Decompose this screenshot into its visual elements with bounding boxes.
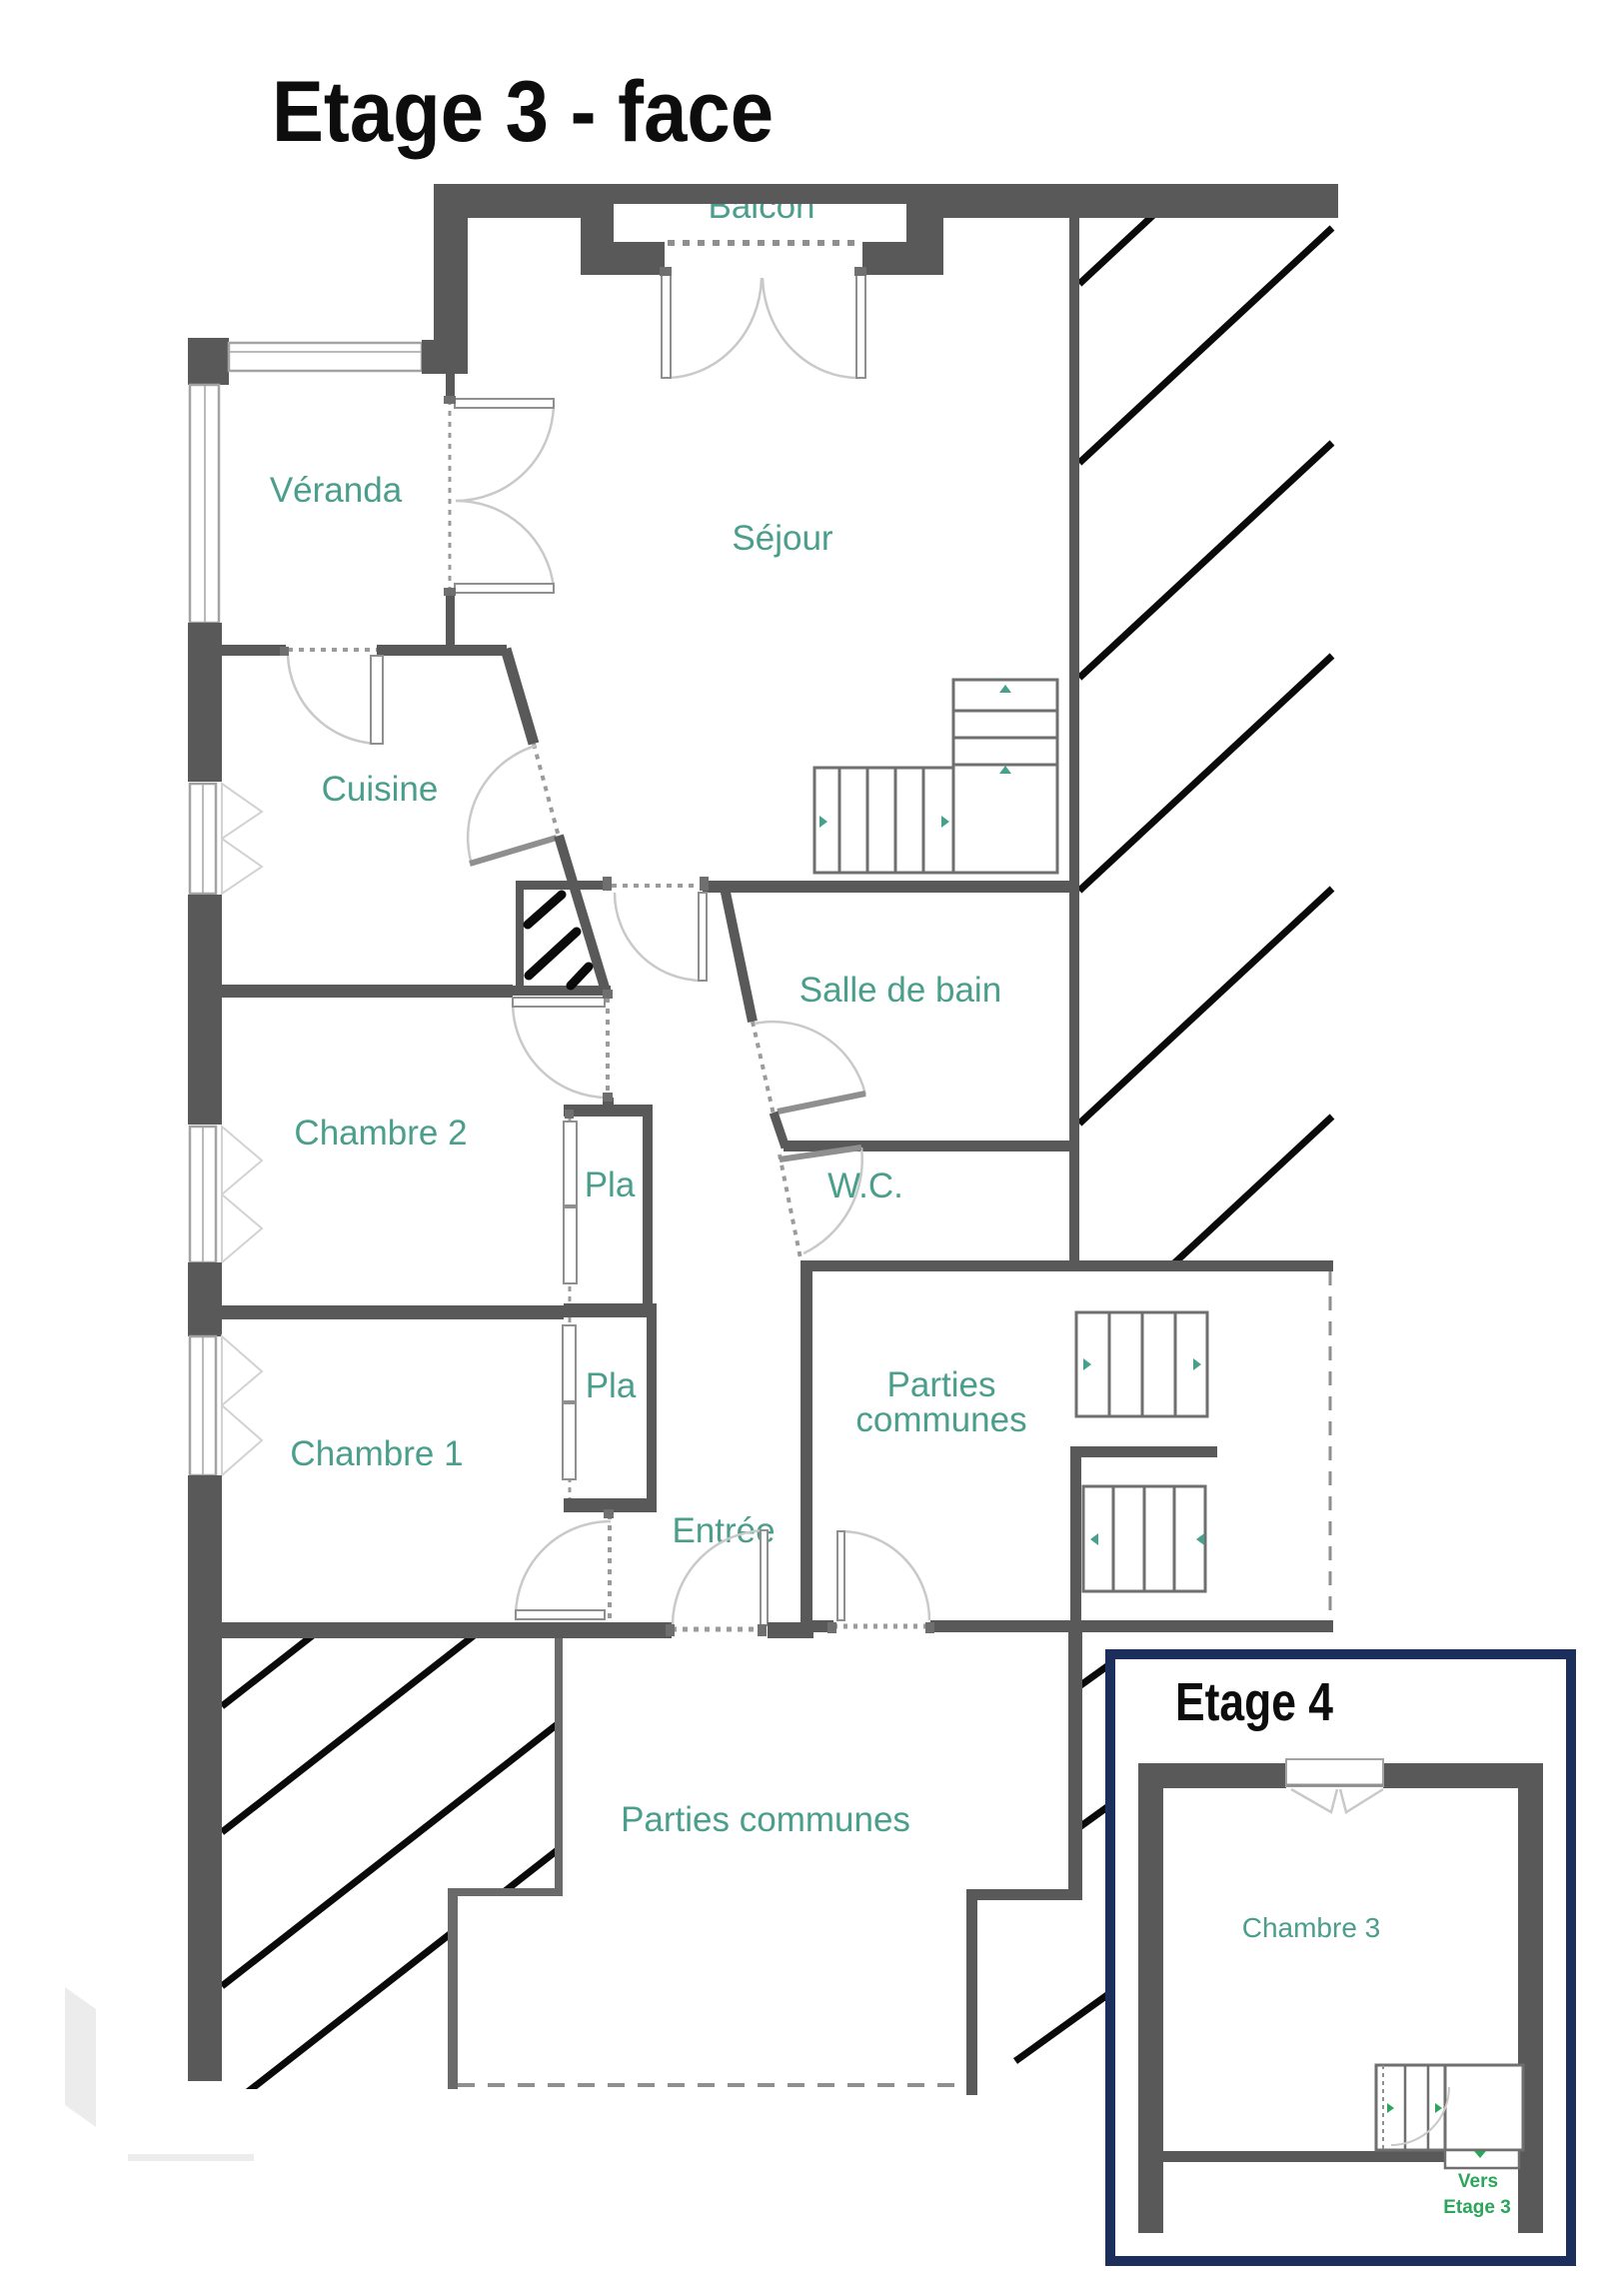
- svg-text:Salle de bain: Salle de bain: [799, 971, 1001, 1010]
- svg-text:Séjour: Séjour: [732, 519, 833, 558]
- svg-text:Chambre 3: Chambre 3: [1242, 1912, 1381, 1943]
- svg-text:Pla: Pla: [586, 1366, 637, 1405]
- svg-text:Etage 3 - face: Etage 3 - face: [272, 64, 774, 160]
- svg-text:Véranda: Véranda: [270, 471, 403, 510]
- svg-text:Vers: Vers: [1458, 2171, 1498, 2192]
- svg-text:Chambre 1: Chambre 1: [290, 1434, 463, 1473]
- svg-text:Chambre 2: Chambre 2: [294, 1114, 467, 1152]
- svg-text:Cuisine: Cuisine: [322, 770, 439, 809]
- svg-text:communes: communes: [855, 1400, 1026, 1439]
- svg-text:Parties communes: Parties communes: [621, 1800, 910, 1839]
- svg-text:W.C.: W.C.: [827, 1166, 903, 1205]
- svg-text:Pla: Pla: [585, 1165, 636, 1204]
- svg-text:Etage 4: Etage 4: [1175, 1672, 1333, 1732]
- svg-text:Parties: Parties: [887, 1365, 996, 1404]
- svg-text:Etage 3: Etage 3: [1443, 2197, 1511, 2218]
